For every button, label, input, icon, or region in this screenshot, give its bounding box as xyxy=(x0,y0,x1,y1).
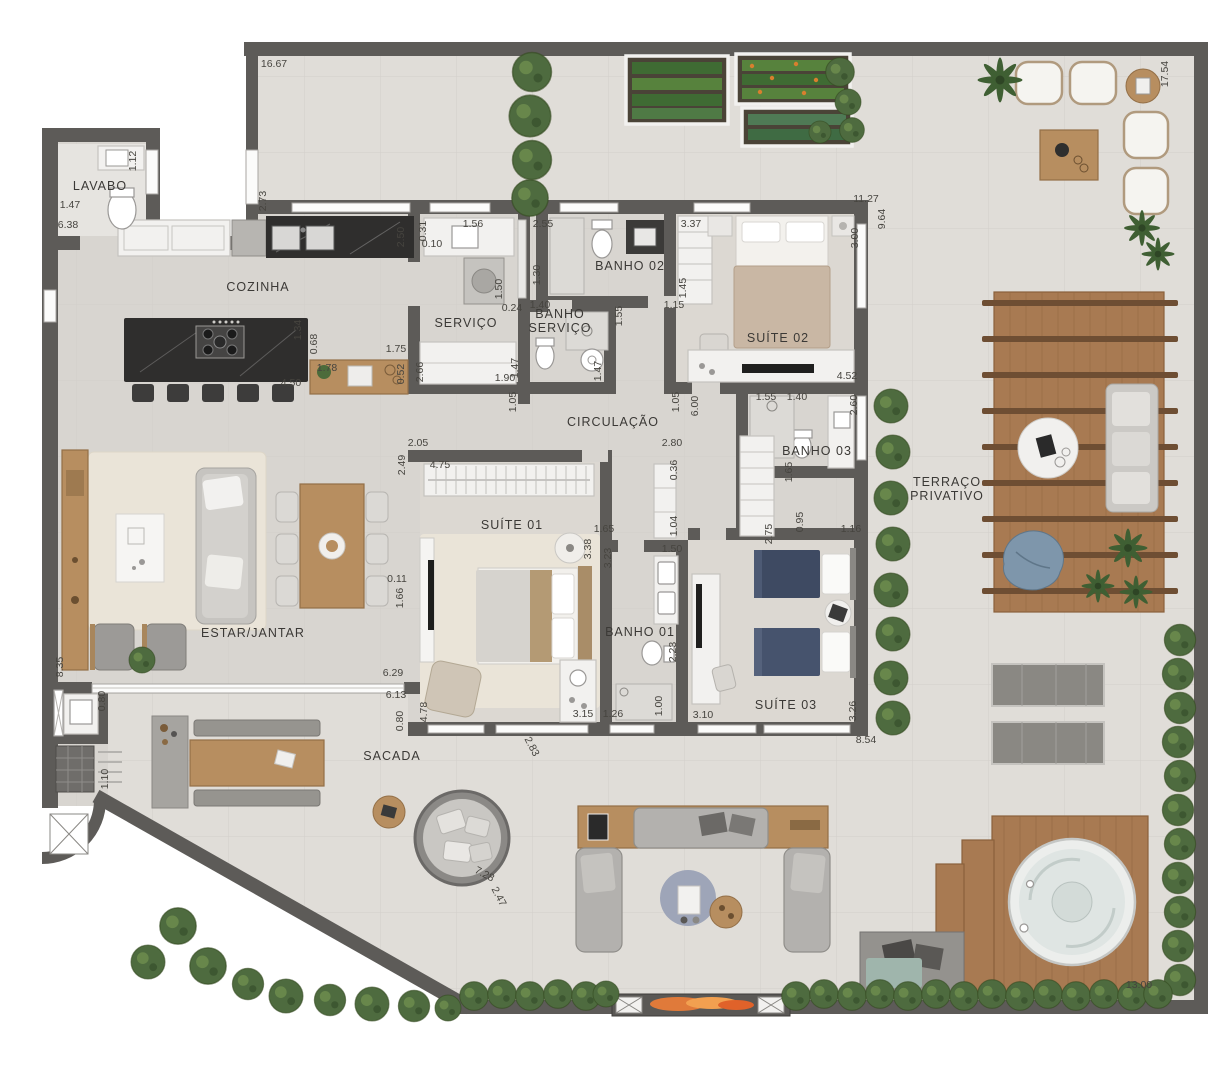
dimension-label: 4.75 xyxy=(430,459,451,471)
dimension-label: 2.60 xyxy=(848,395,860,416)
dimension-label: 3.37 xyxy=(681,218,702,230)
dimension-label: 1.65 xyxy=(594,523,615,535)
dimension-label: 8.35 xyxy=(54,657,66,678)
dimension-label: 8.54 xyxy=(856,734,877,746)
dimension-label: 1.05 xyxy=(507,392,519,413)
dimension-label: 2.55 xyxy=(533,218,554,230)
dimension-label: 6.29 xyxy=(383,667,404,679)
dimension-label: 1.00 xyxy=(653,696,665,717)
dimension-label: 1.55 xyxy=(613,306,625,327)
dimension-label: 1.50 xyxy=(662,543,683,555)
dimension-label: 0.80 xyxy=(394,711,406,732)
dimension-label: 0.24 xyxy=(502,302,523,314)
dimension-label: 6.13 xyxy=(386,689,407,701)
dimension-label: 1.50 xyxy=(493,279,505,300)
dimension-label: 2.73 xyxy=(257,191,269,212)
dimension-label: 1.75 xyxy=(386,343,407,355)
room-label-servico: SERVIÇO xyxy=(434,316,497,330)
room-label-circulacao: CIRCULAÇÃO xyxy=(567,415,659,429)
dimension-label: 2.05 xyxy=(408,437,429,449)
dimension-label: 1.90 xyxy=(495,372,516,384)
dimension-label: 1.65 xyxy=(783,462,795,483)
dimension-label: 1.47 xyxy=(60,199,81,211)
dimension-label: 13.00 xyxy=(1126,979,1152,991)
dimension-label: 3.15 xyxy=(573,708,594,720)
hot-tub xyxy=(1009,839,1135,965)
suite-02-furniture xyxy=(678,216,854,382)
dimension-label: 2.80 xyxy=(662,437,683,449)
dimension-label: 11.27 xyxy=(853,193,879,205)
room-label-estar-jantar: ESTAR/JANTAR xyxy=(201,626,305,640)
dimension-label: 1.12 xyxy=(127,151,139,172)
dimension-label: 1.15 xyxy=(664,299,685,311)
room-label-banho-03: BANHO 03 xyxy=(782,444,852,458)
dimension-label: 3.10 xyxy=(693,709,714,721)
room-label-cozinha: COZINHA xyxy=(226,280,289,294)
dimension-label: 4.52 xyxy=(837,370,858,382)
room-label-suite-03: SUÍTE 03 xyxy=(755,697,817,712)
dimension-label: 3.00 xyxy=(849,228,861,249)
room-label-banho-servico: BANHOSERVIÇO xyxy=(528,307,591,335)
dimension-label: 2.49 xyxy=(396,455,408,476)
dimension-label: 1.45 xyxy=(677,278,689,299)
room-label-banho-01: BANHO 01 xyxy=(605,625,675,639)
dimension-label: 1.47 xyxy=(592,361,604,382)
room-label-terraco-privativo: TERRAÇOPRIVATIVO xyxy=(910,475,984,503)
kitchen-counters xyxy=(118,216,414,258)
dimension-label: 1.66 xyxy=(394,588,406,609)
dimension-label: 1.05 xyxy=(670,392,682,413)
dimension-label: 0.68 xyxy=(308,334,320,355)
dimension-label: 1.10 xyxy=(99,769,111,790)
suite-03-closet xyxy=(740,436,774,536)
fire-pit xyxy=(612,994,790,1016)
dimension-label: 2.23 xyxy=(667,642,679,663)
dimension-label: 6.38 xyxy=(58,219,79,231)
dimension-label: 3.26 xyxy=(847,701,859,722)
dimension-label: 0.36 xyxy=(668,460,680,481)
dimension-label: 1.04 xyxy=(668,516,680,537)
kitchen-island xyxy=(124,318,308,382)
dimension-label: 1.30 xyxy=(531,265,543,286)
room-label-sacada: SACADA xyxy=(363,749,420,763)
floor-plan: 16.6717.542.731.121.476.382.500.310.101.… xyxy=(0,0,1232,1080)
dimension-label: 1.55 xyxy=(756,391,777,403)
room-label-suite-01: SUÍTE 01 xyxy=(481,517,543,532)
dimension-label: 4.50 xyxy=(281,377,302,389)
room-label-banho-02: BANHO 02 xyxy=(595,259,665,273)
room-label-suite-02: SUÍTE 02 xyxy=(747,330,809,345)
dimension-label: 4.78 xyxy=(418,702,430,723)
dimension-label: 9.64 xyxy=(876,209,888,230)
dimension-label: 0.52 xyxy=(395,364,407,385)
dimension-label: 1.56 xyxy=(463,218,484,230)
dimension-label: 16.67 xyxy=(261,58,287,70)
dimension-label: 1.34 xyxy=(292,320,304,341)
dimension-label: 0.10 xyxy=(422,238,443,250)
dimension-label: 0.95 xyxy=(794,512,806,533)
dimension-label: 3.38 xyxy=(582,539,594,560)
room-label-lavabo: LAVABO xyxy=(73,179,127,193)
dimension-label: 1.40 xyxy=(787,391,808,403)
dimension-label: 6.00 xyxy=(689,396,701,417)
balcony-dining xyxy=(152,716,324,808)
dimension-label: 2.66 xyxy=(414,362,426,383)
dimension-label: 0.80 xyxy=(96,691,108,712)
dimension-label: 0.11 xyxy=(387,573,407,585)
dimension-label: 3.23 xyxy=(602,548,614,569)
dimension-label: 1.16 xyxy=(841,523,862,535)
dimension-label: 2.75 xyxy=(763,524,775,545)
dimension-label: 1.78 xyxy=(317,362,338,374)
hedge-right xyxy=(1162,624,1195,995)
dimension-label: 17.54 xyxy=(1159,61,1171,87)
dimension-label: 2.50 xyxy=(395,227,407,248)
dimension-label: 1.26 xyxy=(603,708,624,720)
